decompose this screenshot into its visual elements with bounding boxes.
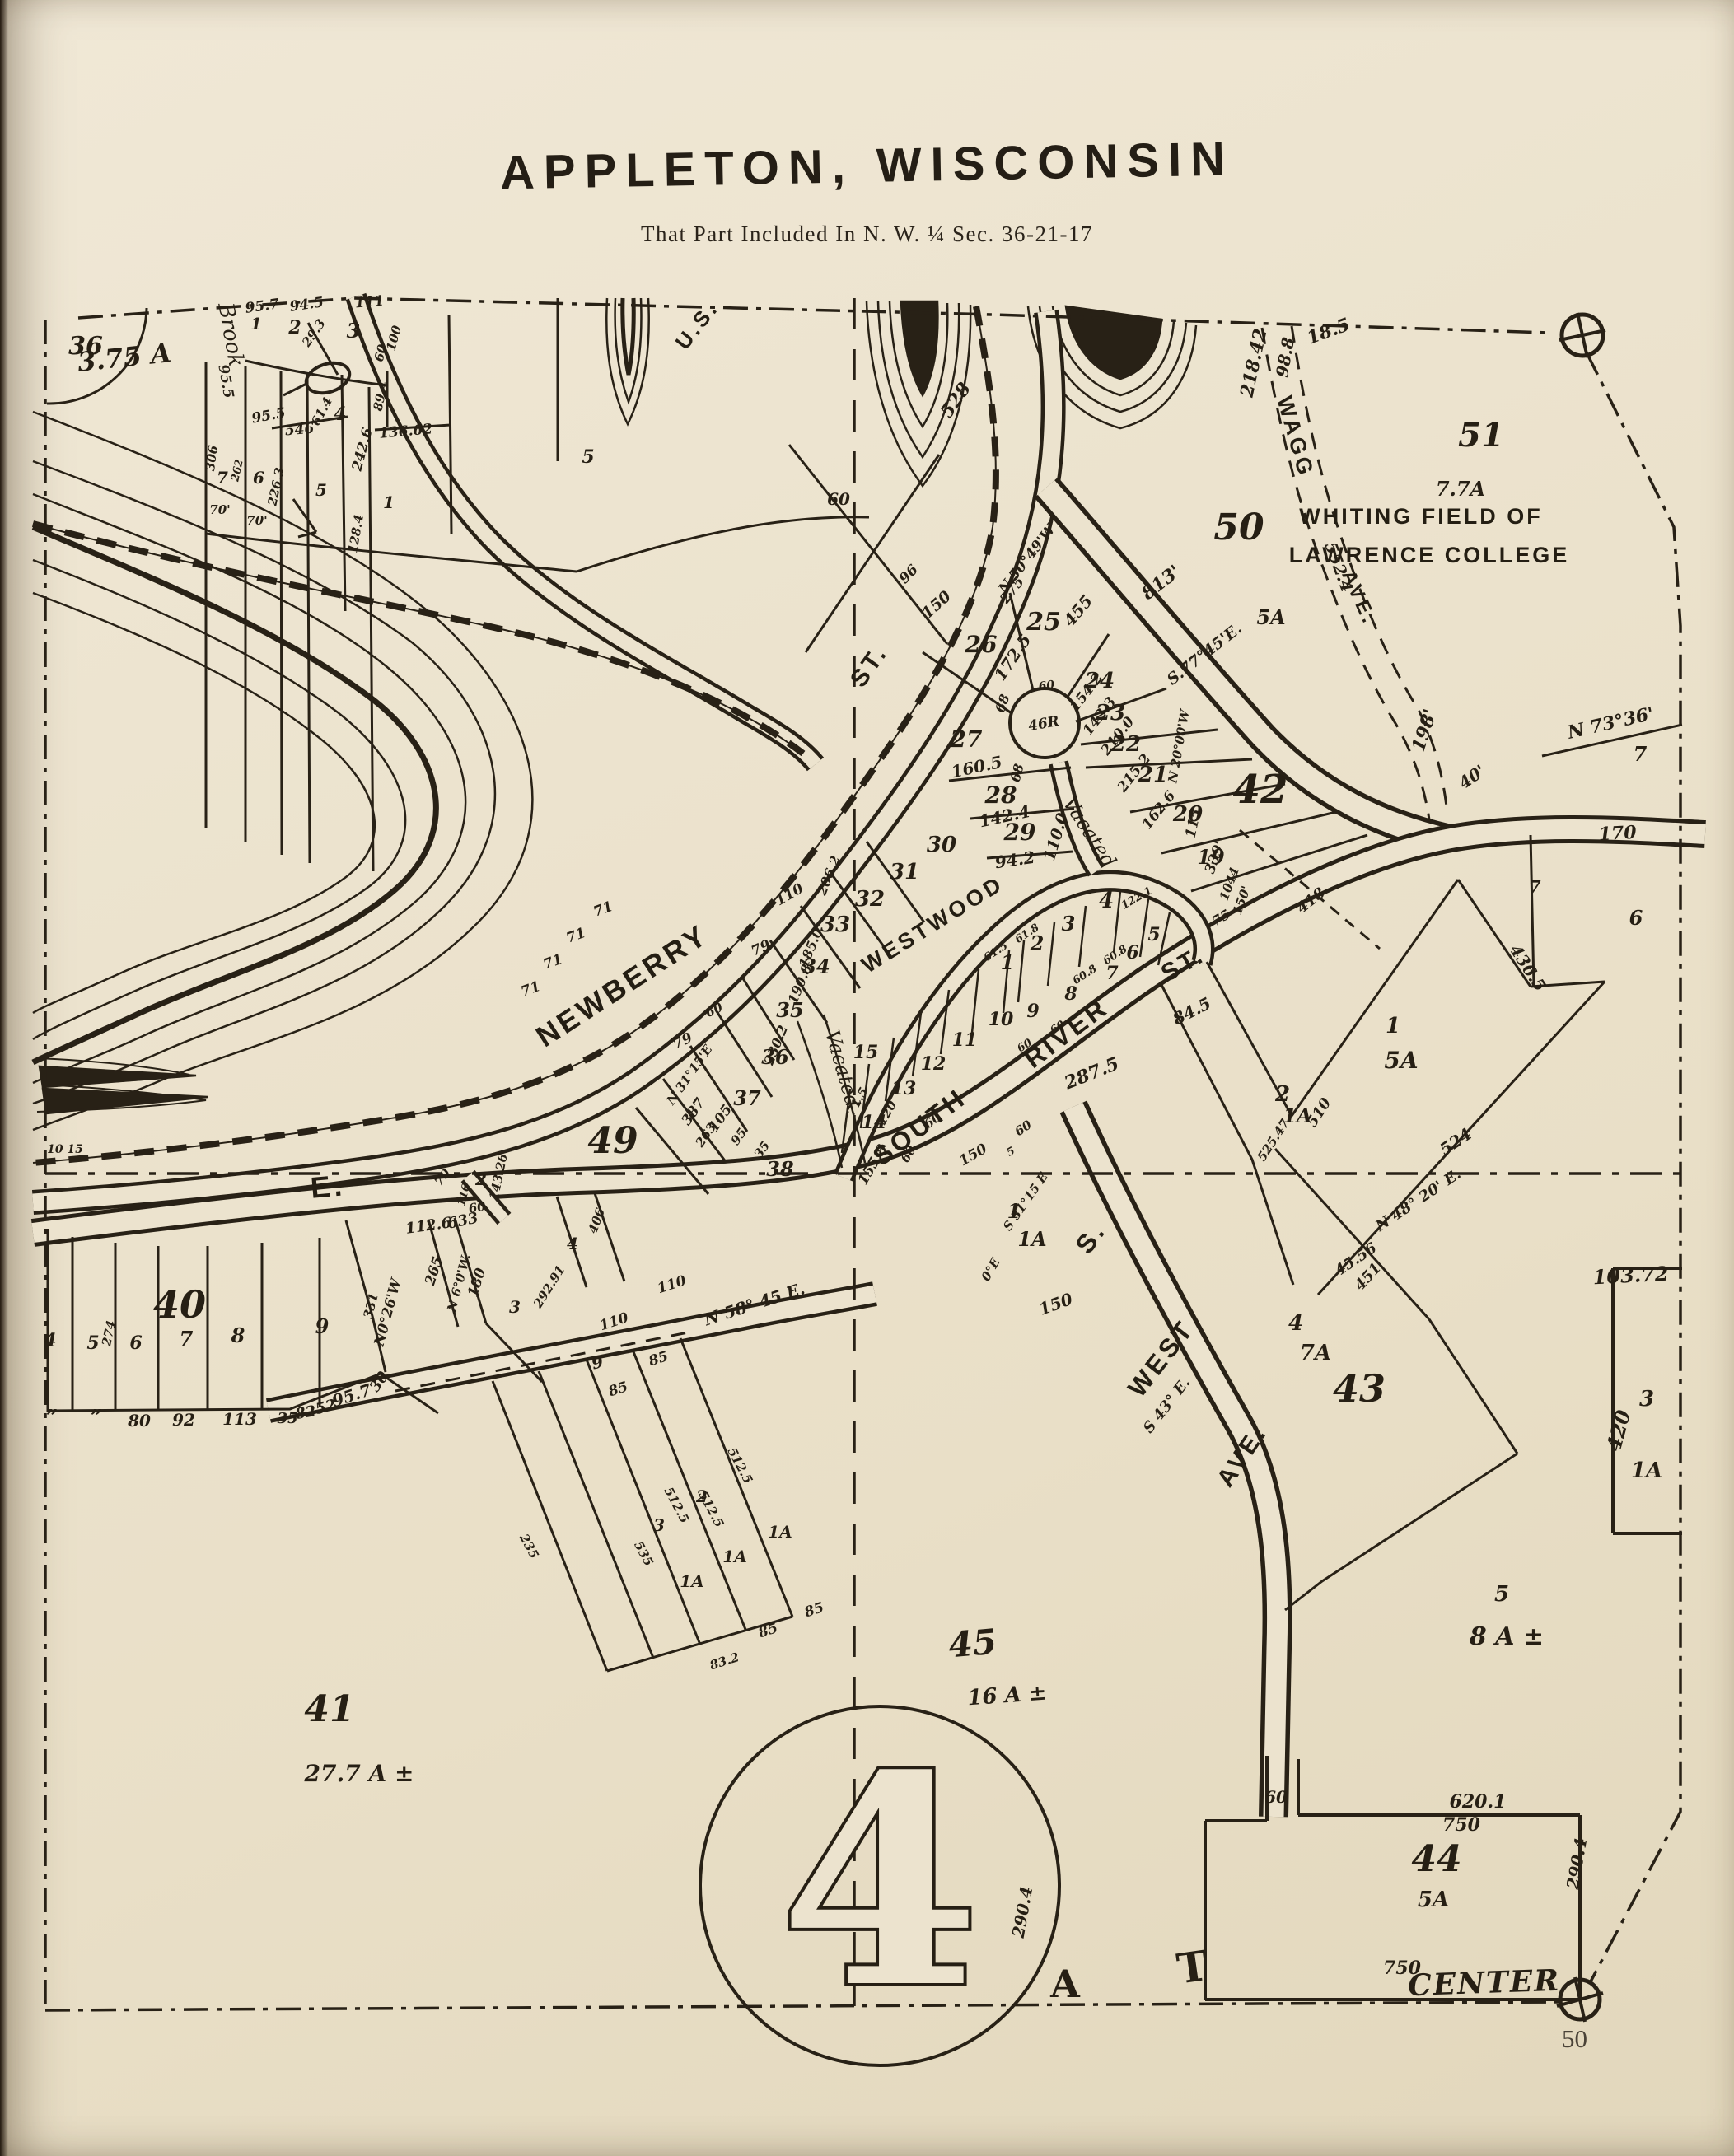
map-label: 7.7A — [1436, 477, 1485, 501]
map-label: 3 — [509, 1297, 521, 1317]
map-label: 6 — [1629, 906, 1643, 930]
map-label: 68 — [1007, 762, 1027, 783]
map-label: 1A — [680, 1571, 703, 1591]
map-label: 290.4 — [1008, 1885, 1037, 1940]
map-label: 26 — [965, 631, 998, 658]
map-label: 10 — [989, 1009, 1014, 1030]
map-label: 9 — [315, 1314, 330, 1338]
map-label: 455 — [1059, 591, 1096, 630]
map-label: CENTER — [1407, 1963, 1561, 2003]
scanned-plat-page: { "page": { "title": "APPLETON, WISCONSI… — [0, 0, 1734, 2156]
map-label: 70' — [209, 502, 230, 517]
map-label: 45 — [946, 1622, 998, 1666]
map-label: 750 — [1442, 1814, 1481, 1836]
map-label: 218.42 — [1236, 327, 1271, 400]
map-label: 80 — [127, 1411, 151, 1430]
map-label: 60 — [1264, 1787, 1288, 1807]
map-label: 5A — [1418, 1888, 1449, 1912]
map-label: 512.5 — [724, 1445, 755, 1486]
map-label: S. — [1069, 1216, 1111, 1259]
map-label: 38 — [766, 1157, 794, 1181]
map-label: 111 — [354, 293, 385, 312]
map-label: 292.91 — [530, 1262, 568, 1311]
map-label: 4 — [779, 1712, 980, 2051]
map-label: 2 — [287, 317, 301, 338]
map-label: 82 — [293, 1402, 317, 1423]
map-label: 150 — [956, 1141, 990, 1169]
map-label: 633 — [446, 1209, 479, 1232]
map-label: 1A — [768, 1522, 792, 1542]
map-label: 4 — [1288, 1311, 1303, 1336]
map-label: 198' — [1408, 707, 1442, 754]
map-label: 71 — [541, 951, 565, 973]
map-label: 620.1 — [1450, 1791, 1507, 1813]
map-label: 51 — [1458, 416, 1504, 455]
map-label: 3 — [1639, 1387, 1654, 1412]
map-label: 16 A ± — [966, 1681, 1047, 1711]
map-label: 3 — [653, 1515, 665, 1535]
map-label: ” — [46, 1405, 58, 1429]
map-label: 1A — [1017, 1227, 1046, 1251]
map-label: 94.5 — [288, 294, 325, 315]
map-label: 525.47 — [1255, 1116, 1293, 1164]
map-label: Brook — [213, 300, 248, 369]
map-label: 15 — [853, 1042, 879, 1063]
map-label: 436.5 — [1506, 940, 1550, 995]
map-label: 5 — [1005, 1145, 1017, 1160]
map-label: 60.8 — [1071, 963, 1100, 987]
railroad-track — [33, 306, 996, 1163]
map-label: 60 — [1012, 1117, 1035, 1139]
map-label: N 73°36' — [1565, 703, 1657, 744]
map-label: 128.4 — [345, 513, 367, 553]
map-label: 85 — [755, 1620, 780, 1642]
map-label: 7 — [1528, 877, 1541, 898]
map-label: 60 — [827, 489, 850, 509]
map-label: 5 — [86, 1332, 99, 1354]
map-label: 84.5 — [1169, 993, 1214, 1029]
map-label: 5A — [1256, 605, 1285, 629]
map-label: 33 — [820, 912, 850, 937]
map-label: 71 — [591, 898, 615, 921]
map-label: 242.6 — [348, 426, 376, 474]
map-label: 0°E — [979, 1255, 1004, 1284]
map-label: 10 15 — [47, 1143, 83, 1156]
map-label: 30 — [927, 833, 956, 857]
map-label: 12 — [921, 1053, 946, 1075]
map-label: 37 — [733, 1086, 761, 1110]
map-label: 5A — [1384, 1047, 1418, 1074]
map-label: 61.4 — [308, 394, 335, 428]
map-label: 11 — [952, 1029, 978, 1051]
map-label: 1 — [1386, 1014, 1400, 1038]
map-label: 32 — [855, 887, 885, 912]
map-label: 29 — [1003, 819, 1036, 846]
map-label: 2 — [474, 1169, 487, 1189]
map-label: 5 — [1494, 1582, 1509, 1607]
map-label: 150 — [918, 587, 955, 623]
map-label: 6 — [129, 1332, 142, 1354]
map-label: 71 — [519, 978, 543, 1001]
map-label: 110 — [773, 880, 806, 909]
map-label: 28 — [984, 782, 1017, 809]
map-label: 3 — [1062, 912, 1076, 936]
map-label: 235 — [516, 1531, 542, 1561]
map-label: 42 — [1233, 767, 1288, 813]
map-label: 7 — [1634, 742, 1648, 766]
map-label: 8 — [1063, 983, 1077, 1005]
map-label: 9 — [1026, 1001, 1039, 1022]
map-label: 85 — [646, 1348, 671, 1370]
map-label: 70' — [246, 513, 267, 528]
map-label: N 48° 20' E. — [1372, 1165, 1465, 1235]
map-label: 1A — [1631, 1458, 1662, 1483]
map-label: 4 — [1099, 889, 1114, 913]
map-label: 40 — [153, 1282, 206, 1327]
map-label: 49 — [587, 1120, 638, 1162]
map-label: 103.72 — [1592, 1262, 1669, 1290]
map-label: 1 — [383, 492, 395, 512]
map-label: 27.7 A ± — [304, 1760, 414, 1787]
page-number: 50 — [1562, 2024, 1587, 2054]
map-label: 2 — [695, 1486, 708, 1506]
map-label: 25 — [1026, 608, 1061, 637]
map-label: 95.7 — [244, 296, 280, 317]
map-label: 13 — [891, 1078, 917, 1099]
map-label: 290.4 — [1563, 1836, 1591, 1892]
map-label: 60 — [1038, 679, 1056, 694]
map-label: 512.5 — [661, 1485, 692, 1526]
map-label: 750 — [1383, 1958, 1422, 1979]
map-label: 5 — [315, 480, 327, 500]
map-label: 226.3 — [264, 466, 287, 508]
map-label: 18.5 — [1304, 314, 1353, 349]
map-label: E. — [309, 1168, 346, 1205]
map-label: WHITING FIELD OF — [1299, 504, 1542, 529]
map-label: U.S. — [671, 296, 724, 354]
map-label: 43 — [1333, 1366, 1386, 1411]
map-label: 3 — [347, 319, 361, 343]
map-label: 5 — [1147, 924, 1160, 945]
map-label: 8 A ± — [1469, 1622, 1544, 1651]
map-label: 95.5 — [214, 363, 236, 399]
plat-map-svg: 4041424344454950514WHITING FIELD OFLAWRE… — [0, 0, 1734, 2156]
map-label: 535 — [631, 1539, 657, 1569]
map-label: 4 — [334, 404, 346, 425]
map-label: 92 — [172, 1410, 195, 1430]
map-label: 420 — [1601, 1407, 1635, 1454]
map-label: 29.3 — [298, 316, 328, 350]
map-label: 1 — [250, 314, 262, 334]
map-label: 1A — [722, 1547, 746, 1566]
map-label: 8 — [231, 1323, 245, 1347]
map-label: 7 — [180, 1327, 194, 1351]
map-label: 7 — [217, 468, 228, 488]
map-label: 85 — [605, 1379, 630, 1401]
map-label: 7A — [1300, 1341, 1331, 1365]
map-label: A — [1049, 1962, 1081, 2006]
map-label: 113 — [222, 1409, 257, 1429]
map-label: ” — [91, 1405, 102, 1429]
survey-corner-marker-top-right — [1559, 313, 1605, 357]
map-label: 44 — [1411, 1838, 1461, 1880]
map-label: 170 — [1598, 822, 1638, 845]
map-label: 40' — [1455, 761, 1489, 793]
map-label: 71 — [564, 925, 588, 947]
map-label: 98.8 — [1272, 336, 1298, 379]
map-label: 50 — [1213, 506, 1264, 548]
map-label: 41 — [304, 1688, 354, 1730]
map-label: 110 — [655, 1272, 688, 1297]
map-label: 6 — [253, 468, 264, 488]
map-label: 528 — [936, 379, 975, 422]
map-label: 31 — [890, 860, 919, 884]
map-label: 262 — [229, 458, 246, 483]
map-label: 4 — [44, 1330, 56, 1351]
map-label: 85 — [802, 1599, 826, 1622]
map-label: 83.2 — [708, 1650, 741, 1673]
map-label: 27 — [950, 726, 983, 753]
map-label: 5 — [582, 446, 594, 468]
map-label: 287.5 — [1061, 1053, 1123, 1094]
map-label: N 20°00'W — [1165, 707, 1193, 784]
map-label: 4 — [567, 1234, 578, 1253]
map-label: 150 — [1036, 1289, 1076, 1319]
map-label: ST. — [845, 639, 894, 692]
map-label: 94.2 — [993, 847, 1036, 873]
map-label: 110.0 — [1040, 811, 1072, 863]
